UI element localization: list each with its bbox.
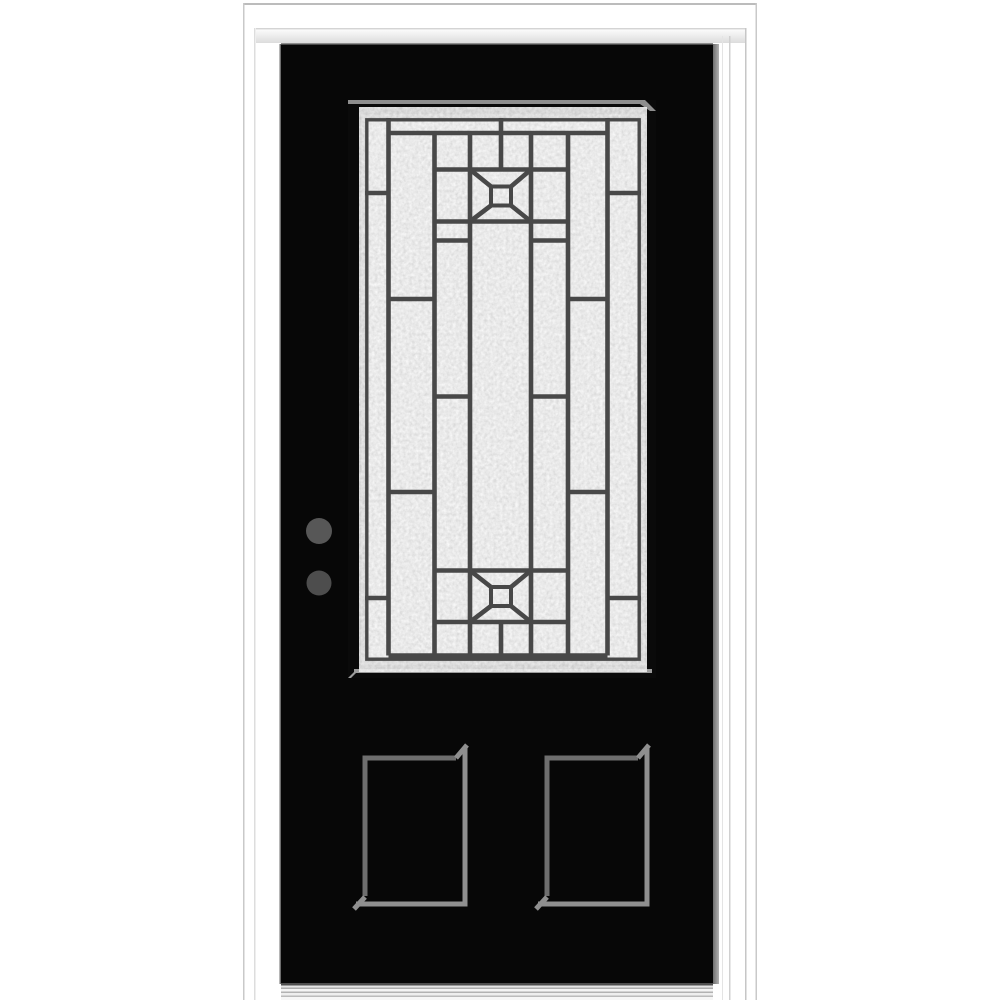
glass-insert (348, 100, 656, 678)
frame-top-bevel (256, 30, 746, 43)
frame-outer-top-line (244, 3, 757, 5)
door-left-seam (280, 44, 282, 984)
frame-jamb-right-faint-line (722, 36, 723, 1000)
frame-outer-right-line (756, 3, 758, 1000)
glass-texture (365, 118, 641, 661)
door-right-edge (713, 44, 719, 984)
bezel-bottom-highlight (354, 669, 652, 673)
frame-inner-right-line (745, 28, 747, 1000)
sill-shadow-line (281, 983, 713, 986)
product-photo (0, 0, 1000, 1000)
frame-inner-top-line (256, 28, 746, 30)
sill-stripes (281, 986, 713, 1000)
bore-hole-top (306, 518, 332, 544)
frame-inner-left-line (254, 28, 256, 1000)
frame-outer-left-line (243, 3, 245, 1000)
frame-jamb-right-line (729, 36, 731, 1000)
door-sill (281, 983, 713, 1000)
door-top-seam (281, 43, 713, 45)
door-assembly-svg (0, 0, 1000, 1000)
bore-hole-bottom (307, 571, 332, 596)
